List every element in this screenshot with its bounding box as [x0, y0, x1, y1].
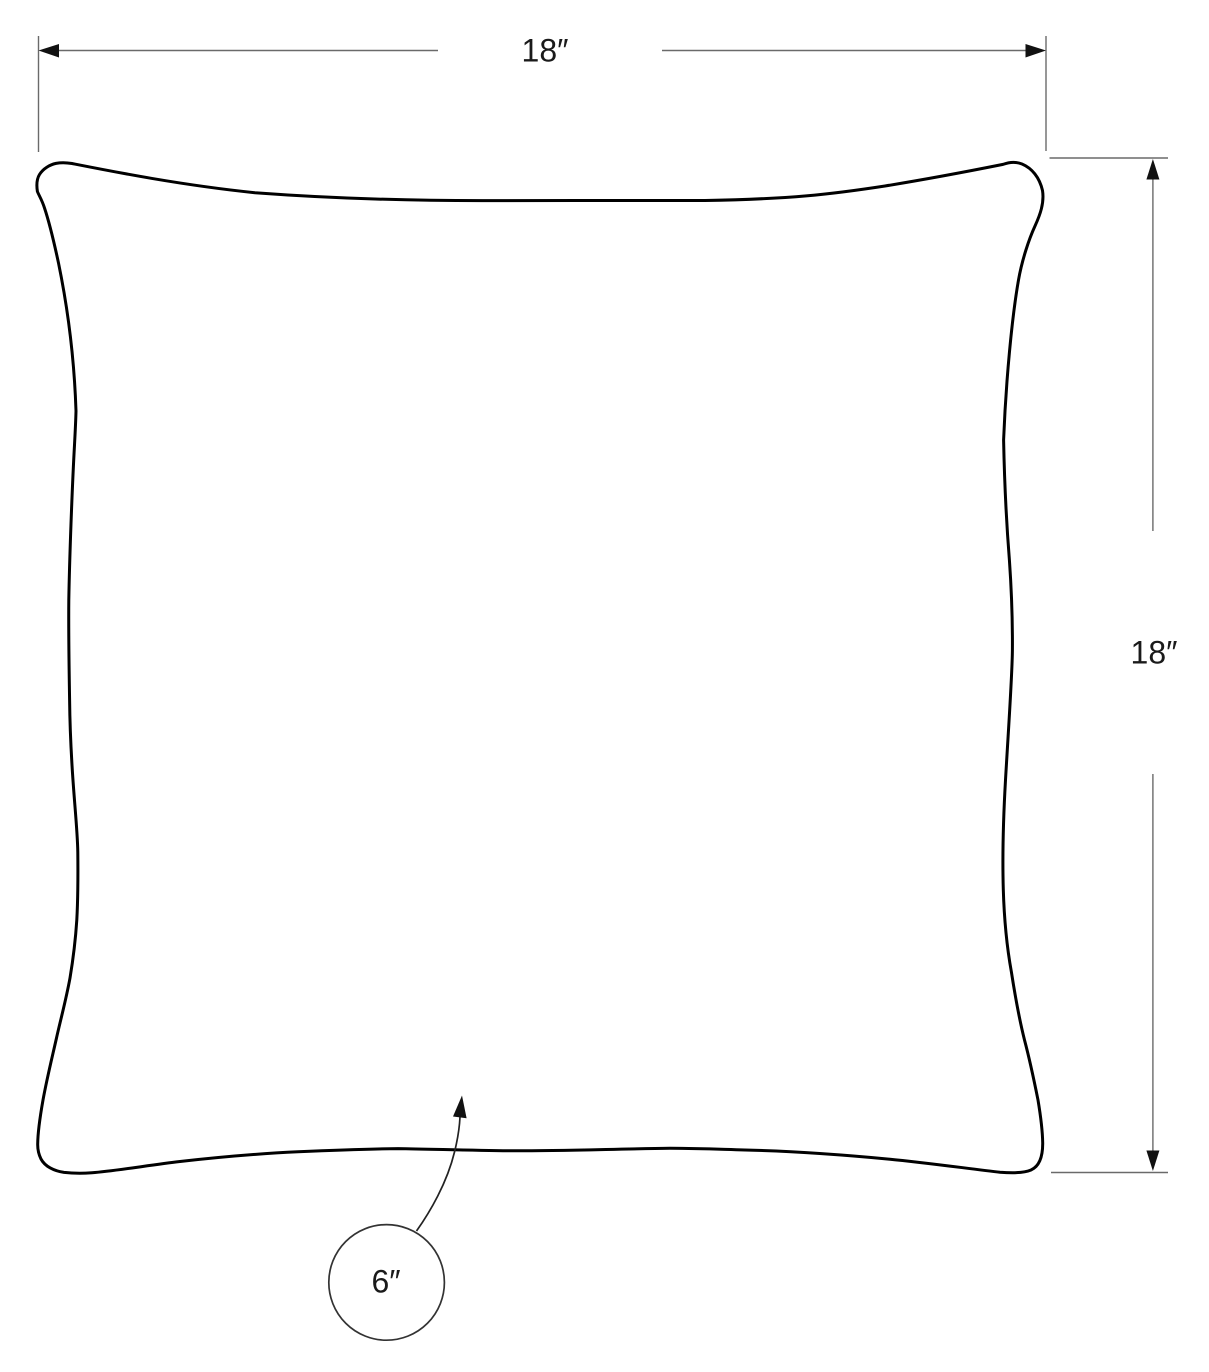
svg-text:18″: 18″	[522, 33, 569, 69]
svg-text:6″: 6″	[371, 1264, 400, 1300]
svg-text:18″: 18″	[1131, 635, 1178, 671]
